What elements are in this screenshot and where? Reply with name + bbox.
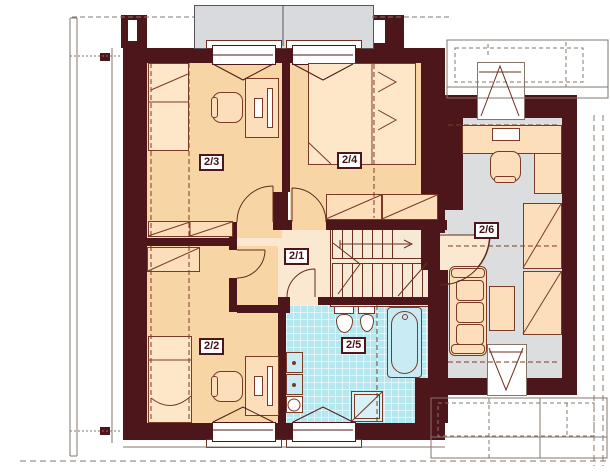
- eave-anchor-top: [100, 53, 110, 61]
- desk-23-item: [254, 98, 263, 118]
- dresser-22: [147, 247, 200, 272]
- wardrobe-23: [148, 221, 233, 237]
- wall-outer-bottom: [123, 423, 445, 440]
- room-label-2-5: 2/5: [341, 337, 366, 354]
- window-24: [292, 45, 356, 65]
- chair-23: [212, 92, 243, 123]
- wall-26-left-shoulder: [445, 118, 463, 210]
- wall-bath-right-low: [415, 395, 448, 423]
- wardrobe-26-a: [523, 203, 562, 269]
- chair-22: [212, 371, 243, 402]
- wall-26-right: [562, 118, 577, 395]
- wardrobe-26-b: [523, 271, 562, 335]
- bed-24: [308, 63, 416, 165]
- washbasin-b: [286, 374, 303, 395]
- floor-plan: 2/1 2/2 2/3 2/4 2/5 2/6: [0, 0, 610, 474]
- room-label-2-1: 2/1: [284, 248, 309, 265]
- wardrobe-24-b: [382, 194, 438, 220]
- bed-23: [148, 63, 189, 151]
- wall-22-bath: [278, 305, 286, 423]
- monitor-22: [267, 366, 273, 406]
- sofa-26-arm-top: [451, 268, 485, 278]
- washing-machine: [286, 396, 303, 413]
- window-23: [212, 45, 276, 65]
- window-25: [292, 422, 356, 442]
- monitor-26: [492, 128, 520, 141]
- stair-rail: [332, 258, 428, 264]
- stair-flight-lower: [332, 262, 428, 297]
- sofa-26-arm-bottom: [451, 344, 485, 354]
- wall-23-south: [123, 238, 237, 246]
- room-label-2-4: 2/4: [337, 152, 362, 169]
- roof-window-26-north: [477, 62, 525, 120]
- washbasin-a: [286, 352, 303, 373]
- chimney-top-center-slot: [374, 20, 385, 43]
- sofa-26-cushion: [456, 280, 484, 301]
- wall-partition-23-24: [282, 63, 290, 192]
- desk-22-item: [254, 376, 263, 396]
- bathtub-inner: [391, 311, 418, 374]
- wall-24-south-b: [326, 220, 447, 230]
- wall-hall-left-bottom: [229, 278, 237, 312]
- wall-door-stub: [273, 192, 288, 230]
- chimney-top-left-slot: [128, 20, 137, 41]
- monitor-23: [267, 88, 273, 128]
- room-label-2-2: 2/2: [199, 338, 224, 355]
- shower-inner: [354, 394, 380, 419]
- desk-26-return: [534, 153, 562, 194]
- toilet-tank: [334, 306, 354, 314]
- room-label-2-6: 2/6: [474, 222, 499, 239]
- wardrobe-24-a: [326, 194, 382, 220]
- sofa-26-cushion: [456, 324, 484, 345]
- bidet-tank: [358, 306, 375, 314]
- sofa-26-cushion: [456, 302, 484, 323]
- stair-flight-upper: [332, 230, 398, 258]
- chair-26: [490, 151, 521, 182]
- coffee-table-26: [489, 286, 515, 331]
- roof-window-26-south: [487, 344, 527, 396]
- bed-22: [148, 336, 192, 423]
- wall-24-south-a: [288, 220, 292, 230]
- wall-door26-jamb: [421, 233, 440, 270]
- eave-anchor-bottom: [100, 427, 110, 435]
- room-label-2-3: 2/3: [199, 154, 224, 171]
- window-22: [212, 422, 276, 442]
- wall-bath-top: [318, 297, 428, 305]
- wall-bath-right: [428, 270, 448, 378]
